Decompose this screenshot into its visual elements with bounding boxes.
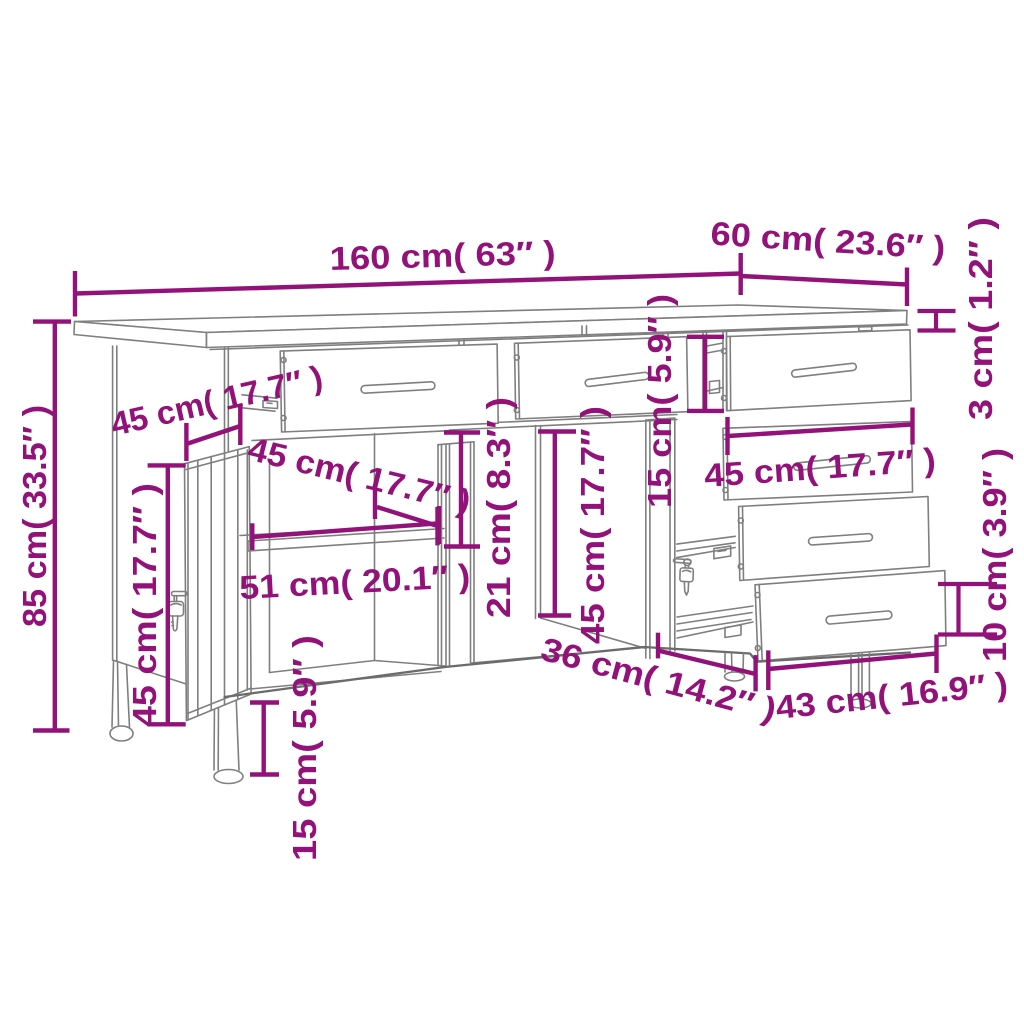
svg-text:15 cm( 5.9″ ): 15 cm( 5.9″ ) xyxy=(286,635,323,861)
svg-text:3 cm( 1.2″ ): 3 cm( 1.2″ ) xyxy=(962,217,999,420)
svg-text:160 cm( 63″ ): 160 cm( 63″ ) xyxy=(329,234,556,277)
svg-text:10 cm( 3.9″ ): 10 cm( 3.9″ ) xyxy=(976,448,1013,662)
svg-text:45 cm( 17.7″ ): 45 cm( 17.7″ ) xyxy=(126,483,163,727)
svg-text:45 cm( 17.7″ ): 45 cm( 17.7″ ) xyxy=(574,406,611,644)
svg-text:85 cm( 33.5″ ): 85 cm( 33.5″ ) xyxy=(16,405,53,627)
svg-text:21 cm( 8.3″ ): 21 cm( 8.3″ ) xyxy=(480,397,517,618)
svg-text:15 cm( 5.9″ ): 15 cm( 5.9″ ) xyxy=(641,294,678,508)
